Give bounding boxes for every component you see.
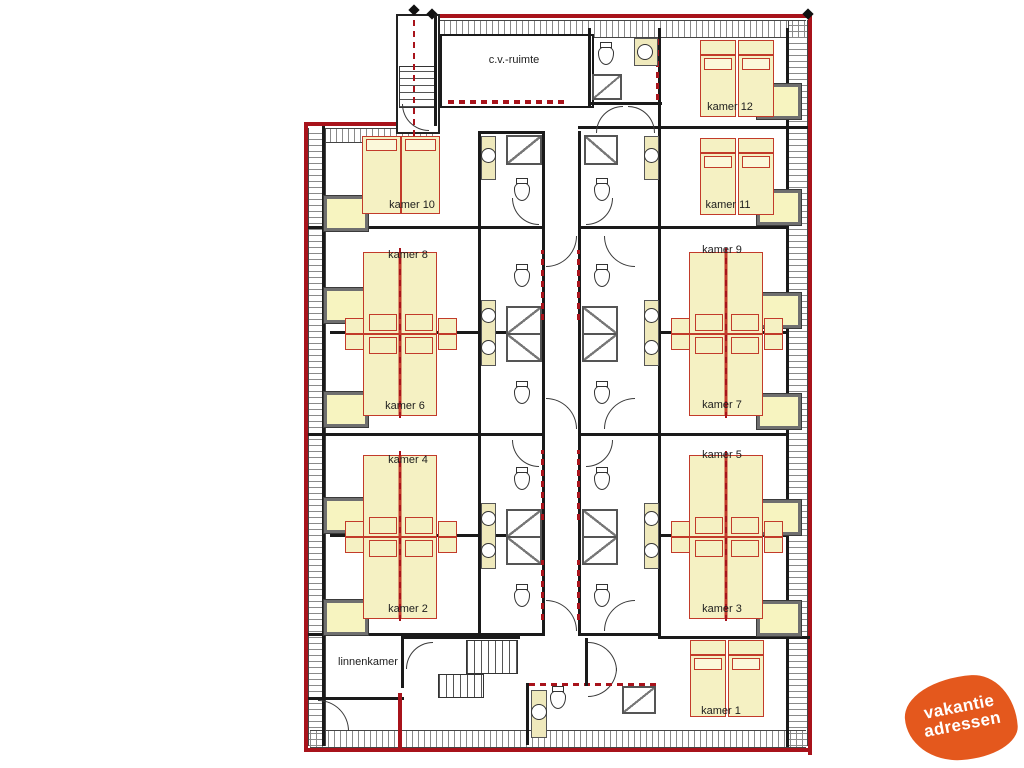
toilet-icon xyxy=(550,690,566,709)
door-arc xyxy=(586,440,613,467)
room-label-k7: kamer 7 xyxy=(702,399,742,411)
sink-icon xyxy=(481,543,496,558)
headboard xyxy=(728,640,764,655)
headboard xyxy=(738,138,774,153)
room-label-k10: kamer 10 xyxy=(389,199,435,211)
toilet-icon xyxy=(514,471,530,490)
toilet-icon xyxy=(594,588,610,607)
door-arc xyxy=(546,236,577,267)
stairs-tower-treads xyxy=(399,66,435,108)
wall xyxy=(588,102,662,105)
shower-icon xyxy=(592,74,622,100)
wall xyxy=(401,636,404,688)
door-arc xyxy=(604,236,635,267)
wall xyxy=(588,28,591,106)
dashed-wall xyxy=(541,250,544,320)
door-arc xyxy=(604,600,635,631)
wall xyxy=(526,683,529,745)
door-arc xyxy=(596,106,623,133)
wall xyxy=(308,433,481,436)
wall-red xyxy=(398,693,402,748)
wall xyxy=(658,226,788,229)
bed-cluster xyxy=(671,451,781,621)
door-arc xyxy=(512,198,539,225)
door-arc xyxy=(604,398,635,429)
dashed-wall xyxy=(541,560,544,620)
sink-icon xyxy=(644,308,659,323)
sink-icon xyxy=(644,340,659,355)
room-cv-outline xyxy=(440,34,594,108)
roof-hatch-bottom xyxy=(310,730,806,748)
wall xyxy=(478,226,545,229)
door-arc xyxy=(546,600,577,631)
wall xyxy=(578,433,658,436)
room-label-k2: kamer 2 xyxy=(388,603,428,615)
dashed-wall xyxy=(541,450,544,520)
wall xyxy=(478,131,545,134)
stairs-treads xyxy=(466,640,518,674)
room-label-k4: kamer 4 xyxy=(388,454,428,466)
shower-icon xyxy=(506,509,542,538)
sink-icon xyxy=(637,44,653,60)
headboard xyxy=(690,640,726,655)
wall xyxy=(404,636,520,639)
door-arc xyxy=(406,642,433,669)
wall xyxy=(658,636,810,639)
logo-text: vakantie adressen xyxy=(902,688,1019,745)
shower-icon xyxy=(582,509,618,538)
wall xyxy=(585,638,588,686)
toilet-icon xyxy=(514,385,530,404)
bed-cluster xyxy=(345,248,455,418)
shower-icon xyxy=(506,333,542,362)
boundary-top xyxy=(432,14,812,18)
toilet-icon xyxy=(514,268,530,287)
wall xyxy=(786,28,789,747)
room-label-k9: kamer 9 xyxy=(702,244,742,256)
room-label-linnen: linnenkamer xyxy=(338,656,398,668)
sink-icon xyxy=(644,148,659,163)
wall xyxy=(578,226,658,229)
headboard xyxy=(700,138,736,153)
toilet-icon xyxy=(594,385,610,404)
toilet-icon xyxy=(594,471,610,490)
dashed-wall xyxy=(448,100,568,104)
boundary-bottom xyxy=(304,748,812,752)
room-label-k12: kamer 12 xyxy=(707,101,753,113)
sink-icon xyxy=(481,308,496,323)
shower-icon xyxy=(584,135,618,165)
door-arc xyxy=(318,700,349,731)
floor-plan: c.v.-ruimte kamer 12 kamer 10 kamer 11 k… xyxy=(0,0,1024,768)
bed-cluster xyxy=(671,248,781,418)
door-arc xyxy=(546,398,577,429)
headboard xyxy=(700,40,736,55)
sink-icon xyxy=(481,340,496,355)
shower-icon xyxy=(582,306,618,335)
stairs-treads xyxy=(438,674,484,698)
room-label-k6: kamer 6 xyxy=(385,400,425,412)
door-arc xyxy=(512,440,539,467)
shower-icon xyxy=(506,306,542,335)
door-arc xyxy=(628,106,655,133)
toilet-icon xyxy=(514,588,530,607)
room-label-cv: c.v.-ruimte xyxy=(489,54,540,66)
bed-cluster xyxy=(345,451,455,621)
boundary-right xyxy=(808,14,812,755)
dashed-wall xyxy=(577,450,580,520)
shower-icon xyxy=(622,686,656,714)
room-label-k1: kamer 1 xyxy=(701,705,741,717)
door-arc xyxy=(586,198,613,225)
door-arc xyxy=(588,642,617,671)
room-label-k5: kamer 5 xyxy=(702,449,742,461)
headboard xyxy=(738,40,774,55)
dashed-wall xyxy=(577,250,580,320)
dashed-wall xyxy=(577,560,580,620)
sink-icon xyxy=(481,148,496,163)
room-label-k8: kamer 8 xyxy=(388,249,428,261)
shower-icon xyxy=(506,135,542,165)
wall xyxy=(478,633,545,636)
shower-icon xyxy=(506,536,542,565)
sink-icon xyxy=(531,704,547,720)
shower-icon xyxy=(582,333,618,362)
toilet-icon xyxy=(598,46,614,65)
sink-icon xyxy=(644,543,659,558)
sink-icon xyxy=(644,511,659,526)
wall xyxy=(578,633,658,636)
sink-icon xyxy=(481,511,496,526)
wall xyxy=(658,433,788,436)
wall xyxy=(434,14,437,126)
room-label-k3: kamer 3 xyxy=(702,603,742,615)
room-label-k11: kamer 11 xyxy=(705,199,750,211)
vakantieadressen-logo: vakantie adressen xyxy=(902,672,1020,764)
shower-icon xyxy=(582,536,618,565)
toilet-icon xyxy=(594,268,610,287)
wall xyxy=(478,433,545,436)
